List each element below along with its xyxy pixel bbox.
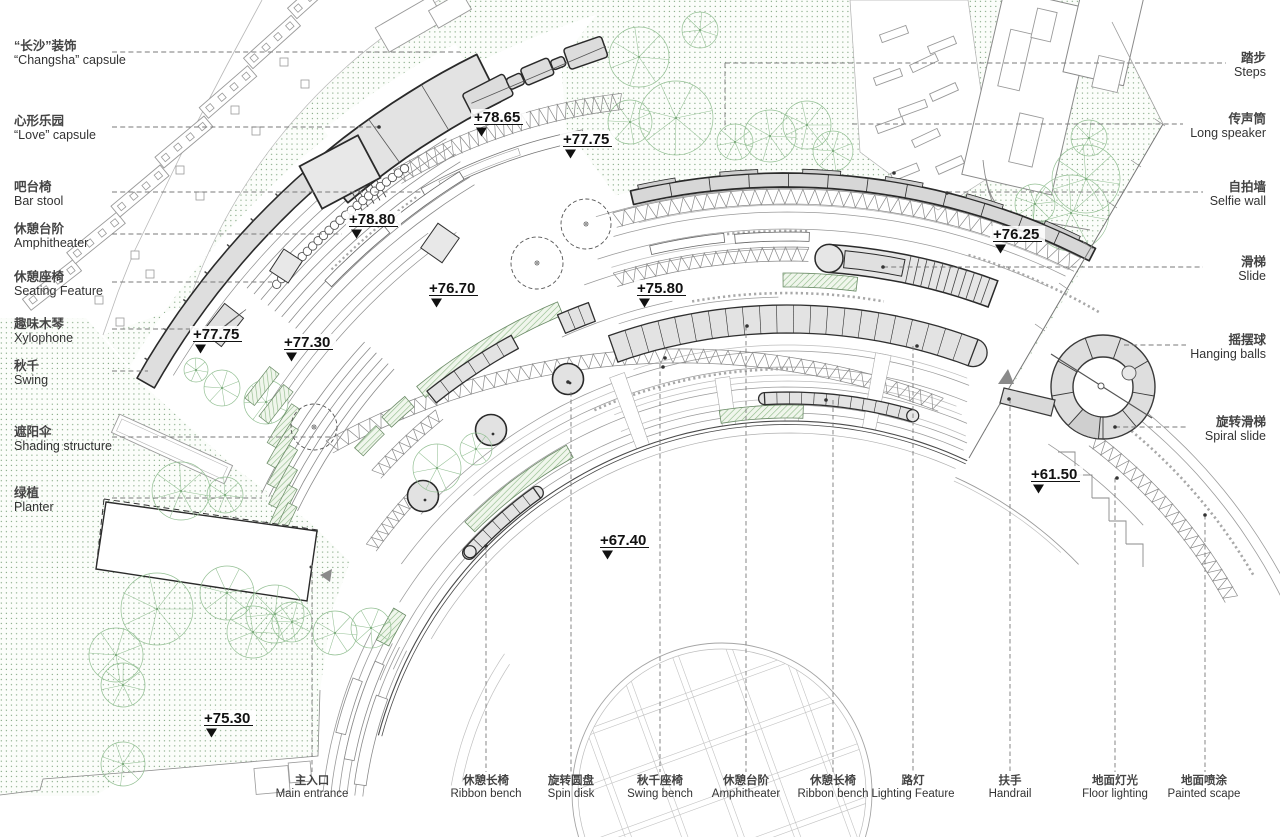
svg-text:Swing bench: Swing bench (627, 788, 693, 800)
svg-text:+78.80: +78.80 (349, 211, 395, 228)
svg-text:Seating Feature: Seating Feature (14, 284, 103, 298)
svg-text:旋转圆盘: 旋转圆盘 (547, 773, 594, 787)
svg-text:+76.70: +76.70 (429, 280, 475, 297)
svg-text:地面灯光: 地面灯光 (1092, 773, 1138, 787)
svg-text:+78.65: +78.65 (474, 109, 520, 126)
svg-text:绿植: 绿植 (14, 485, 40, 500)
svg-text:+75.30: +75.30 (204, 710, 250, 727)
svg-text:Slide: Slide (1238, 269, 1266, 283)
svg-text:Xylophone: Xylophone (14, 331, 73, 345)
svg-text:踏步: 踏步 (1241, 50, 1266, 65)
svg-text:休憩长椅: 休憩长椅 (809, 773, 856, 787)
svg-text:休憩长椅: 休憩长椅 (462, 773, 509, 787)
svg-text:心形乐园: 心形乐园 (14, 113, 64, 128)
svg-text:Steps: Steps (1234, 65, 1266, 79)
svg-text:休憩台阶: 休憩台阶 (722, 773, 769, 787)
svg-text:Spiral slide: Spiral slide (1205, 429, 1266, 443)
svg-text:+77.75: +77.75 (563, 131, 609, 148)
svg-text:自拍墙: 自拍墙 (1228, 179, 1266, 194)
svg-text:Painted scape: Painted scape (1168, 788, 1241, 800)
svg-text:传声筒: 传声筒 (1227, 111, 1266, 126)
svg-text:Floor lighting: Floor lighting (1082, 788, 1148, 800)
svg-text:Shading structure: Shading structure (14, 439, 112, 453)
svg-text:滑梯: 滑梯 (1241, 254, 1267, 269)
svg-text:Spin disk: Spin disk (548, 788, 595, 800)
svg-text:趣味木琴: 趣味木琴 (13, 316, 65, 331)
svg-text:+77.30: +77.30 (284, 334, 330, 351)
svg-text:Ribbon bench: Ribbon bench (451, 788, 522, 800)
svg-text:吧台椅: 吧台椅 (14, 179, 52, 194)
svg-text:“Love” capsule: “Love” capsule (14, 128, 96, 142)
svg-text:Planter: Planter (14, 500, 54, 514)
svg-text:+77.75: +77.75 (193, 326, 239, 343)
svg-text:Hanging balls: Hanging balls (1190, 347, 1266, 361)
svg-text:秋千座椅: 秋千座椅 (637, 773, 683, 787)
svg-text:路灯: 路灯 (902, 773, 925, 787)
svg-text:+61.50: +61.50 (1031, 466, 1077, 483)
svg-text:“长沙”装饰: “长沙”装饰 (14, 38, 77, 53)
svg-text:Lighting Feature: Lighting Feature (871, 788, 954, 800)
svg-text:Swing: Swing (14, 373, 48, 387)
svg-text:扶手: 扶手 (999, 773, 1022, 787)
svg-text:Bar stool: Bar stool (14, 194, 63, 208)
svg-text:休憩台阶: 休憩台阶 (13, 221, 65, 236)
svg-text:摇摆球: 摇摆球 (1228, 332, 1266, 347)
svg-text:秋千: 秋千 (14, 358, 40, 373)
svg-text:遮阳伞: 遮阳伞 (14, 424, 52, 439)
svg-text:Handrail: Handrail (989, 788, 1032, 800)
svg-text:+67.40: +67.40 (600, 532, 646, 549)
svg-text:地面喷涂: 地面喷涂 (1181, 773, 1227, 787)
svg-text:Selfie wall: Selfie wall (1210, 194, 1266, 208)
svg-text:+76.25: +76.25 (993, 226, 1039, 243)
svg-text:Main entrance: Main entrance (276, 788, 349, 800)
svg-text:Amphitheater: Amphitheater (14, 236, 88, 250)
svg-text:Ribbon bench: Ribbon bench (798, 788, 869, 800)
svg-text:休憩座椅: 休憩座椅 (13, 269, 65, 284)
svg-text:+75.80: +75.80 (637, 280, 683, 297)
svg-text:Long speaker: Long speaker (1190, 126, 1266, 140)
svg-text:旋转滑梯: 旋转滑梯 (1215, 414, 1267, 429)
svg-text:Amphitheater: Amphitheater (712, 788, 781, 800)
svg-text:主入口: 主入口 (295, 773, 330, 787)
svg-text:“Changsha” capsule: “Changsha” capsule (14, 53, 126, 67)
